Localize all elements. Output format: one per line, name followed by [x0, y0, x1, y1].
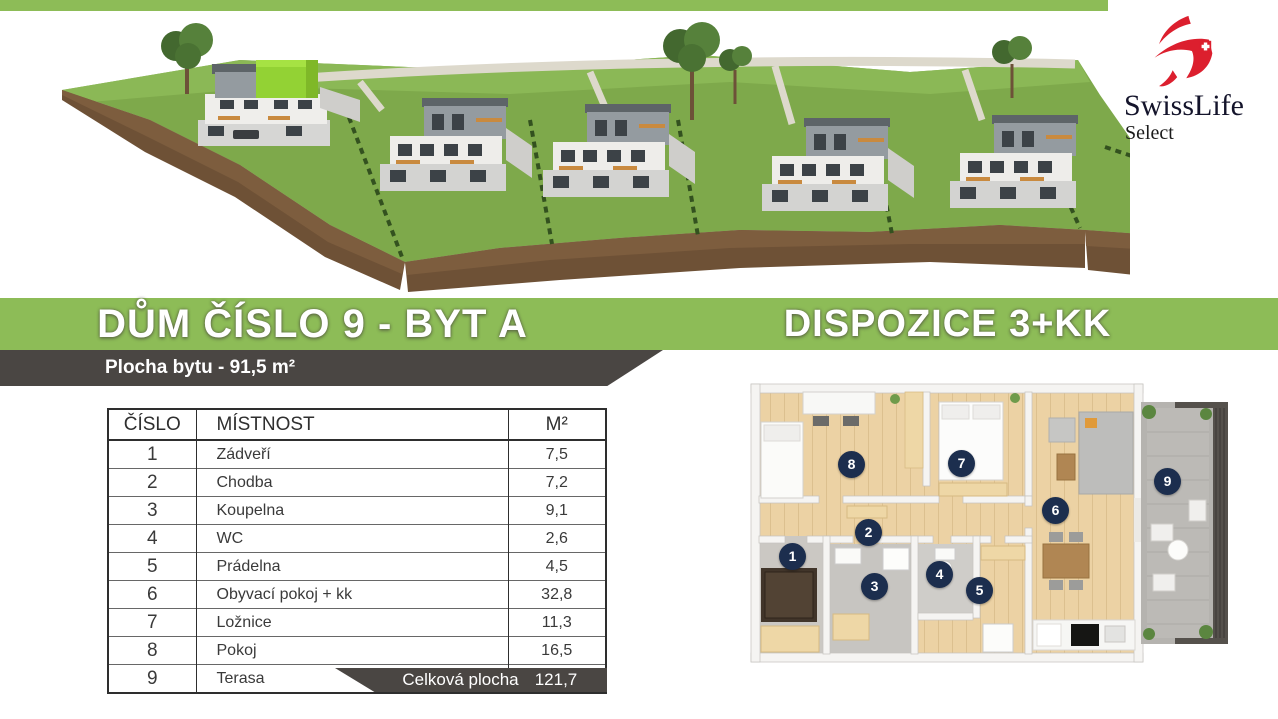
- row-room-name: Zádveří: [196, 440, 508, 469]
- row-number: 8: [108, 637, 196, 665]
- total-area-label: Celková plocha: [383, 668, 538, 691]
- row-area-value: 32,8: [508, 581, 606, 609]
- row-number: 3: [108, 497, 196, 525]
- row-room-name: Prádelna: [196, 553, 508, 581]
- row-area-value: 11,3: [508, 609, 606, 637]
- brand-logo: SwissLife Select: [1118, 14, 1250, 144]
- header-area: M²: [508, 409, 606, 440]
- site-render-image: [30, 12, 1130, 294]
- room-table-body: 1Zádveří7,52Chodba7,23Koupelna9,14WC2,65…: [108, 440, 606, 693]
- top-accent-bar: [0, 0, 1108, 11]
- row-number: 7: [108, 609, 196, 637]
- row-number: 5: [108, 553, 196, 581]
- room-badge-8: 8: [838, 451, 865, 478]
- room-badge-9: 9: [1154, 468, 1181, 495]
- row-number: 4: [108, 525, 196, 553]
- room-badge-7: 7: [948, 450, 975, 477]
- table-row: 4WC2,6: [108, 525, 606, 553]
- title-banner: DŮM ČÍSLO 9 - BYT A DISPOZICE 3+KK: [0, 298, 1278, 350]
- brand-subname: Select: [1125, 122, 1250, 144]
- table-row: 3Koupelna9,1: [108, 497, 606, 525]
- layout-title: DISPOZICE 3+KK: [660, 298, 1235, 350]
- header-number: ČÍSLO: [108, 409, 196, 440]
- total-area-value: 121,7: [521, 668, 591, 691]
- row-area-value: 16,5: [508, 637, 606, 665]
- header-room: MÍSTNOST: [196, 409, 508, 440]
- total-area-band: Celková plocha 121,7: [335, 668, 607, 692]
- room-badge-4: 4: [926, 561, 953, 588]
- row-number: 1: [108, 440, 196, 469]
- room-table: ČÍSLO MÍSTNOST M² 1Zádveří7,52Chodba7,23…: [107, 408, 607, 694]
- page: SwissLife Select DŮM ČÍSLO 9 - BYT A DIS…: [0, 0, 1278, 719]
- floorplan-drawing: [743, 378, 1228, 668]
- room-badge-3: 3: [861, 573, 888, 600]
- swisslife-swoosh-icon: [1150, 14, 1218, 88]
- row-area-value: 4,5: [508, 553, 606, 581]
- room-badge-6: 6: [1042, 497, 1069, 524]
- apartment-area-band: Plocha bytu - 91,5 m²: [0, 350, 663, 386]
- unit-title: DŮM ČÍSLO 9 - BYT A: [0, 298, 625, 350]
- highlighted-unit: [256, 60, 318, 98]
- floorplan-image: 1 2 3 4 5 6 7 8 9: [743, 378, 1228, 668]
- row-number: 9: [108, 665, 196, 694]
- row-room-name: Pokoj: [196, 637, 508, 665]
- row-room-name: Obyvací pokoj + kk: [196, 581, 508, 609]
- row-room-name: Chodba: [196, 469, 508, 497]
- table-row: 6Obyvací pokoj + kk32,8: [108, 581, 606, 609]
- row-number: 6: [108, 581, 196, 609]
- row-number: 2: [108, 469, 196, 497]
- row-area-value: 9,1: [508, 497, 606, 525]
- row-area-value: 7,5: [508, 440, 606, 469]
- brand-name: SwissLife: [1124, 90, 1250, 122]
- table-row: 2Chodba7,2: [108, 469, 606, 497]
- table-row: 7Ložnice11,3: [108, 609, 606, 637]
- row-area-value: 7,2: [508, 469, 606, 497]
- room-badge-2: 2: [855, 519, 882, 546]
- room-badge-5: 5: [966, 577, 993, 604]
- swiss-cross-icon: [1200, 41, 1211, 52]
- room-badge-1: 1: [779, 543, 806, 570]
- table-header-row: ČÍSLO MÍSTNOST M²: [108, 409, 606, 440]
- table-row: 8Pokoj16,5: [108, 637, 606, 665]
- terrace: [1141, 402, 1228, 644]
- table-row: 5Prádelna4,5: [108, 553, 606, 581]
- row-area-value: 2,6: [508, 525, 606, 553]
- row-room-name: Koupelna: [196, 497, 508, 525]
- row-room-name: Ložnice: [196, 609, 508, 637]
- table-row: 1Zádveří7,5: [108, 440, 606, 469]
- row-room-name: WC: [196, 525, 508, 553]
